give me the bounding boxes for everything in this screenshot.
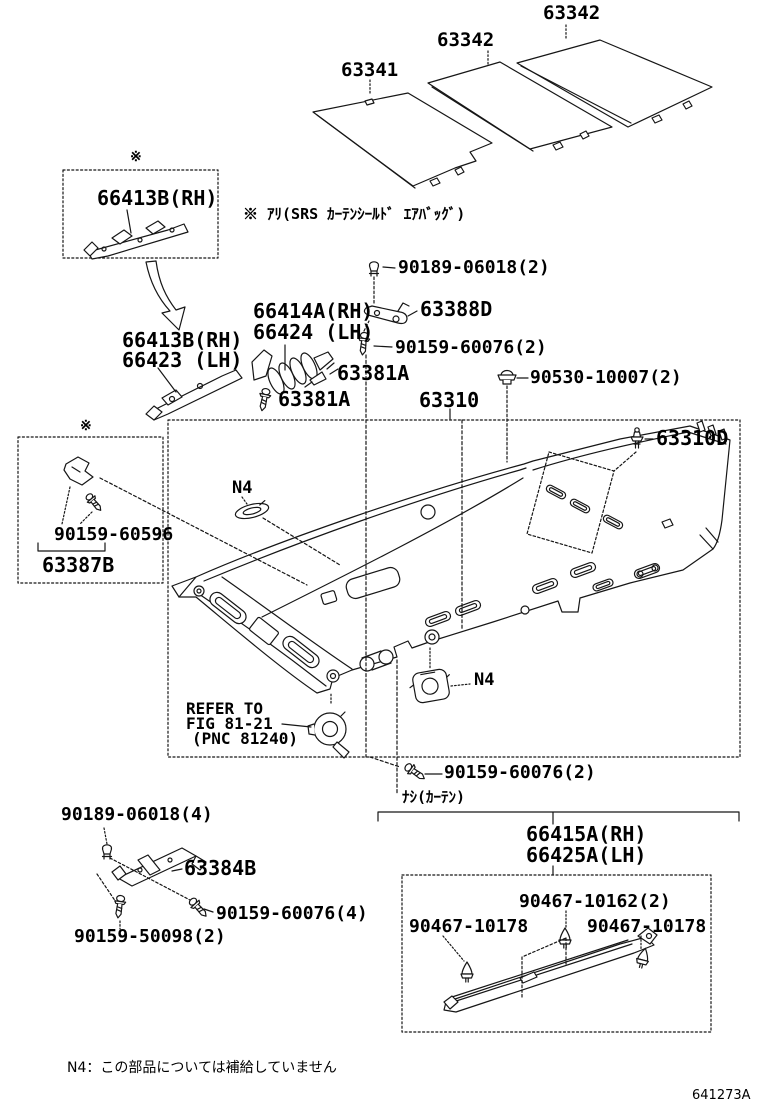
part-label-63388d: 63388D [420, 299, 492, 320]
part-label-63381a-1: 63381A [337, 363, 409, 384]
part-label-63387b: 63387B [42, 555, 114, 576]
part-label-63310d: 63310D [656, 428, 728, 449]
part-label-63384b: 63384B [184, 858, 256, 879]
n4-label-mid: N4 [474, 672, 494, 690]
n4-label-top: N4 [232, 480, 252, 498]
bracket-66413b-drawing [146, 368, 242, 420]
part-label-90189-06018-2: 90189-06018(2) [398, 259, 550, 278]
part-label-90159-50098-2: 90159-50098(2) [74, 928, 226, 947]
part-label-66415a-rh: 66415A(RH) [526, 824, 646, 845]
part-label-63381a-2: 63381A [278, 389, 350, 410]
part-label-63341: 63341 [341, 61, 398, 81]
lamp-refer-drawing [282, 694, 349, 758]
n4-footnote: N4：この部品については補給していません [67, 1061, 337, 1076]
roof-side-bracket-box-drawing [84, 210, 188, 259]
part-label-90189-06018-4: 90189-06018(4) [61, 806, 213, 825]
part-label-90159-60076-2b: 90159-60076(2) [444, 764, 596, 783]
n4-grommet-mid-drawing [408, 648, 470, 704]
part-label-66414a-rh: 66414A(RH) [253, 301, 373, 322]
part-label-63342-rear: 63342 [543, 4, 600, 24]
part-label-90530-10007-2: 90530-10007(2) [530, 369, 682, 388]
part-label-90159-60076-4: 90159-60076(4) [216, 905, 368, 924]
part-label-66424-lh: 66424 (LH) [253, 322, 373, 343]
part-label-66425a-lh: 66425A(LH) [526, 845, 646, 866]
no-curtain-note: ﾅｼ(ｶｰﾃﾝ) [402, 790, 465, 806]
part-label-90159-60596: 90159-60596 [54, 526, 173, 545]
clip-90189-2-drawing [370, 262, 396, 303]
asterisk-mark-top: ※ [130, 150, 142, 165]
grommet-90530-drawing [498, 371, 528, 463]
roof-headlining-drawing [172, 421, 730, 693]
part-label-63310: 63310 [419, 390, 479, 411]
part-label-63342-center: 63342 [437, 31, 494, 51]
part-label-66413b-box: 66413B(RH) [97, 188, 217, 209]
part-label-90467-10162-2: 90467-10162(2) [519, 893, 671, 912]
screw-63381a-2-drawing [257, 388, 272, 412]
part-label-90467-10178-right: 90467-10178 [587, 918, 706, 937]
refer-note-line3: (PNC 81240) [192, 731, 298, 748]
figure-code: 641273A [692, 1089, 751, 1103]
part-label-66423-lh: 66423 (LH) [122, 350, 242, 371]
part-label-90159-60076-2a: 90159-60076(2) [395, 339, 547, 358]
parts-diagram-page: 63342 63342 63341 ※ 66413B(RH) ※ ｱﾘ(SRS … [0, 0, 760, 1112]
part-label-90467-10178-left: 90467-10178 [409, 918, 528, 937]
screw-90159-60076-2b-drawing [403, 761, 442, 783]
asterisk-mark-left: ※ [80, 419, 92, 434]
airbag-note: ※ ｱﾘ(SRS ｶｰﾃﾝｼｰﾙﾄﾞ ｴｱﾊﾞｯｸﾞ) [243, 207, 465, 223]
direction-arrow [146, 261, 185, 330]
